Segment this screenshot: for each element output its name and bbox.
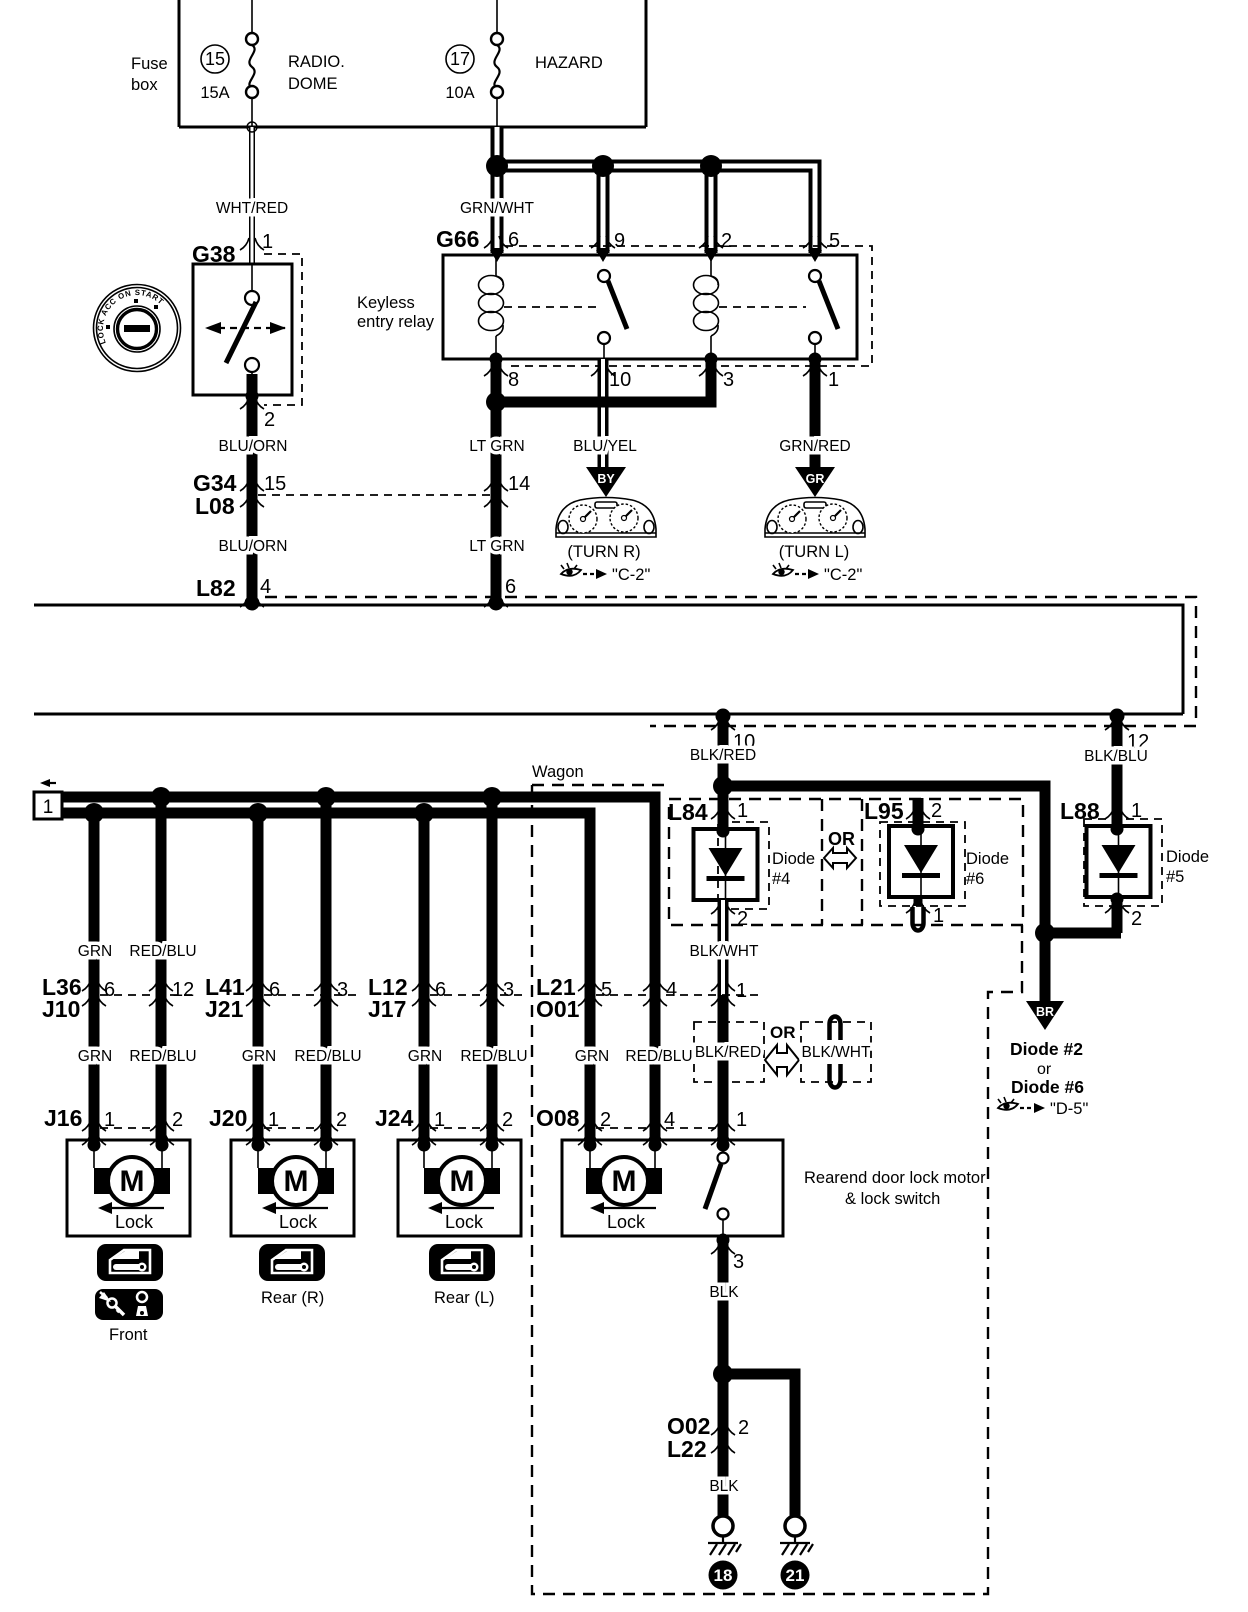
svg-text:8: 8 bbox=[508, 369, 519, 391]
svg-text:3: 3 bbox=[337, 979, 348, 1001]
svg-text:GR: GR bbox=[806, 472, 825, 486]
svg-text:4: 4 bbox=[664, 1109, 675, 1131]
svg-text:entry relay: entry relay bbox=[357, 313, 435, 331]
svg-text:Diode: Diode bbox=[966, 850, 1009, 868]
svg-text:OR: OR bbox=[828, 829, 855, 849]
svg-text:& lock switch: & lock switch bbox=[845, 1190, 940, 1208]
svg-text:6: 6 bbox=[505, 576, 516, 598]
svg-text:"D-5": "D-5" bbox=[1050, 1100, 1088, 1118]
svg-text:GRN: GRN bbox=[408, 1048, 442, 1065]
svg-text:1: 1 bbox=[104, 1109, 115, 1131]
svg-text:RED/BLU: RED/BLU bbox=[129, 1048, 196, 1065]
svg-text:3: 3 bbox=[723, 369, 734, 391]
svg-text:BLU/ORN: BLU/ORN bbox=[219, 438, 288, 455]
svg-text:2: 2 bbox=[737, 908, 748, 930]
svg-text:J17: J17 bbox=[368, 996, 406, 1022]
svg-text:Diode: Diode bbox=[772, 850, 815, 868]
svg-text:GRN/WHT: GRN/WHT bbox=[460, 200, 535, 217]
svg-text:BLU/YEL: BLU/YEL bbox=[573, 438, 637, 455]
svg-text:L22: L22 bbox=[667, 1436, 707, 1462]
svg-text:2: 2 bbox=[931, 800, 942, 822]
svg-text:BLK/RED: BLK/RED bbox=[690, 747, 756, 764]
svg-text:J21: J21 bbox=[205, 996, 244, 1022]
svg-text:RED/BLU: RED/BLU bbox=[294, 1048, 361, 1065]
svg-text:6: 6 bbox=[104, 979, 115, 1001]
svg-text:(TURN R): (TURN R) bbox=[567, 543, 640, 561]
svg-text:GRN: GRN bbox=[575, 1048, 609, 1065]
svg-text:J20: J20 bbox=[209, 1105, 247, 1131]
svg-text:1: 1 bbox=[736, 980, 747, 1002]
svg-text:2: 2 bbox=[738, 1417, 749, 1439]
svg-text:BLK: BLK bbox=[709, 1478, 739, 1495]
svg-text:BLK/WHT: BLK/WHT bbox=[690, 943, 759, 960]
svg-text:J16: J16 bbox=[44, 1105, 82, 1131]
svg-text:15: 15 bbox=[205, 49, 225, 69]
svg-text:"C-2": "C-2" bbox=[824, 566, 862, 584]
svg-text:DOME: DOME bbox=[288, 75, 338, 93]
svg-text:6: 6 bbox=[269, 979, 280, 1001]
svg-text:1: 1 bbox=[933, 905, 944, 927]
svg-text:10A: 10A bbox=[445, 84, 474, 102]
svg-text:2: 2 bbox=[1131, 908, 1142, 930]
svg-text:BLK/RED: BLK/RED bbox=[695, 1044, 761, 1061]
svg-text:Rear (R): Rear (R) bbox=[261, 1289, 324, 1307]
svg-text:#6: #6 bbox=[966, 870, 984, 888]
svg-text:3: 3 bbox=[733, 1251, 744, 1273]
svg-text:BLK: BLK bbox=[709, 1284, 739, 1301]
svg-text:1: 1 bbox=[268, 1109, 279, 1131]
svg-text:1: 1 bbox=[737, 800, 748, 822]
svg-text:RED/BLU: RED/BLU bbox=[129, 943, 196, 960]
svg-text:GRN: GRN bbox=[242, 1048, 276, 1065]
svg-text:2: 2 bbox=[502, 1109, 513, 1131]
svg-text:HAZARD: HAZARD bbox=[535, 54, 603, 72]
svg-text:17: 17 bbox=[450, 49, 470, 69]
svg-text:"C-2": "C-2" bbox=[612, 566, 650, 584]
svg-text:BLU/ORN: BLU/ORN bbox=[219, 538, 288, 555]
svg-text:15A: 15A bbox=[200, 84, 229, 102]
svg-text:Diode #2: Diode #2 bbox=[1010, 1039, 1083, 1059]
svg-text:Front: Front bbox=[109, 1326, 148, 1344]
svg-text:J24: J24 bbox=[375, 1105, 414, 1131]
svg-text:9: 9 bbox=[614, 230, 625, 252]
svg-text:L95: L95 bbox=[864, 798, 904, 824]
svg-text:21: 21 bbox=[786, 1566, 805, 1585]
svg-text:WHT/RED: WHT/RED bbox=[216, 200, 288, 217]
svg-text:14: 14 bbox=[508, 473, 530, 495]
svg-text:Diode: Diode bbox=[1166, 848, 1209, 866]
svg-text:4: 4 bbox=[260, 576, 271, 598]
svg-text:GRN: GRN bbox=[78, 1048, 112, 1065]
svg-text:Fuse: Fuse bbox=[131, 55, 168, 73]
svg-text:#4: #4 bbox=[772, 870, 790, 888]
svg-text:Rear (L): Rear (L) bbox=[434, 1289, 495, 1307]
svg-text:Keyless: Keyless bbox=[357, 294, 415, 312]
svg-text:4: 4 bbox=[666, 979, 677, 1001]
svg-text:RADIO.: RADIO. bbox=[288, 53, 345, 71]
svg-text:LT GRN: LT GRN bbox=[469, 538, 524, 555]
svg-text:1: 1 bbox=[828, 369, 839, 391]
svg-text:RED/BLU: RED/BLU bbox=[625, 1048, 692, 1065]
svg-text:O01: O01 bbox=[536, 996, 580, 1022]
svg-text:box: box bbox=[131, 76, 158, 94]
svg-text:L82: L82 bbox=[196, 575, 236, 601]
svg-text:BR: BR bbox=[1036, 1005, 1054, 1019]
svg-text:10: 10 bbox=[609, 369, 631, 391]
svg-text:BLK/WHT: BLK/WHT bbox=[802, 1044, 871, 1061]
svg-text:1: 1 bbox=[262, 231, 273, 253]
svg-text:O08: O08 bbox=[536, 1105, 580, 1131]
svg-text:OR: OR bbox=[770, 1023, 796, 1042]
svg-text:Diode #6: Diode #6 bbox=[1011, 1077, 1084, 1097]
svg-text:3: 3 bbox=[503, 979, 514, 1001]
svg-text:BLK/BLU: BLK/BLU bbox=[1084, 748, 1148, 765]
svg-text:2: 2 bbox=[721, 230, 732, 252]
svg-text:RED/BLU: RED/BLU bbox=[460, 1048, 527, 1065]
svg-text:2: 2 bbox=[264, 409, 275, 431]
svg-text:L08: L08 bbox=[195, 493, 235, 519]
svg-text:5: 5 bbox=[829, 230, 840, 252]
svg-text:L88: L88 bbox=[1060, 798, 1100, 824]
svg-text:6: 6 bbox=[435, 979, 446, 1001]
svg-text:GRN/RED: GRN/RED bbox=[779, 438, 850, 455]
svg-text:LT GRN: LT GRN bbox=[469, 438, 524, 455]
svg-text:G66: G66 bbox=[436, 226, 479, 252]
svg-text:1: 1 bbox=[736, 1109, 747, 1131]
svg-text:or: or bbox=[1037, 1061, 1052, 1078]
svg-text:1: 1 bbox=[434, 1109, 445, 1131]
svg-text:J10: J10 bbox=[42, 996, 80, 1022]
svg-text:6: 6 bbox=[508, 229, 519, 251]
svg-text:2: 2 bbox=[600, 1109, 611, 1131]
svg-text:(TURN L): (TURN L) bbox=[779, 543, 850, 561]
svg-text:2: 2 bbox=[336, 1109, 347, 1131]
svg-text:Wagon: Wagon bbox=[532, 763, 584, 781]
svg-text:5: 5 bbox=[601, 979, 612, 1001]
svg-text:L84: L84 bbox=[668, 799, 708, 825]
svg-text:15: 15 bbox=[264, 473, 286, 495]
svg-text:1: 1 bbox=[43, 797, 54, 818]
svg-text:12: 12 bbox=[172, 979, 194, 1001]
svg-text:2: 2 bbox=[172, 1109, 183, 1131]
svg-text:BY: BY bbox=[597, 472, 615, 486]
svg-text:#5: #5 bbox=[1166, 868, 1184, 886]
svg-text:18: 18 bbox=[714, 1566, 733, 1585]
svg-text:Rearend door lock motor: Rearend door lock motor bbox=[804, 1169, 986, 1187]
svg-text:GRN: GRN bbox=[78, 943, 112, 960]
